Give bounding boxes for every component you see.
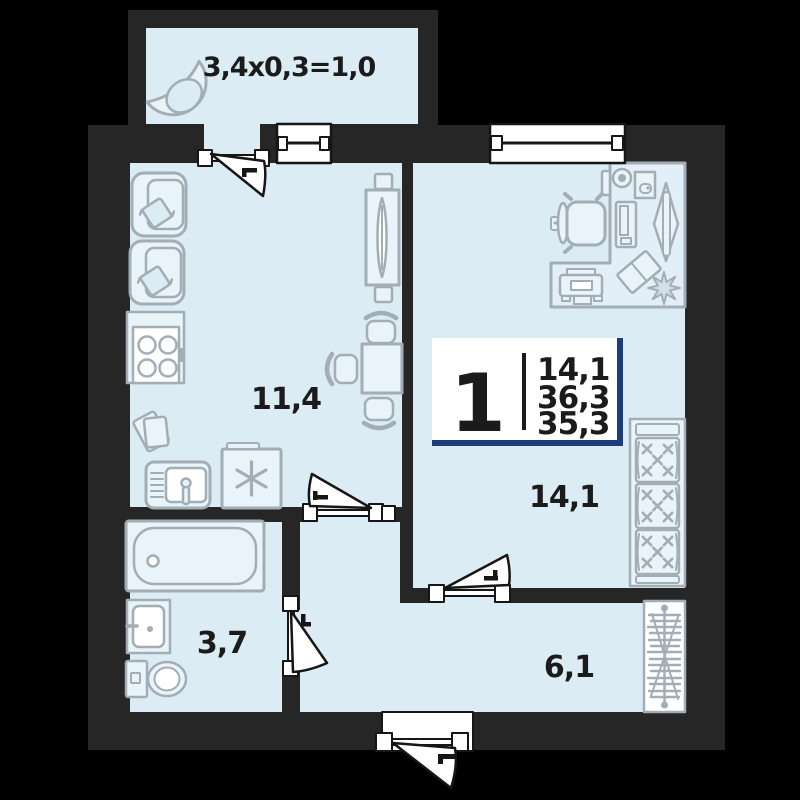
- bedroom-area-label: 14,1: [529, 480, 599, 515]
- badge-divider: [522, 353, 526, 430]
- kitchen-area-label: 11,4: [251, 382, 321, 417]
- hallway-floor: [400, 603, 685, 712]
- kitchen-sink-icon: [146, 462, 210, 508]
- fridge-icon: [222, 443, 281, 508]
- stove-icon: [127, 312, 184, 383]
- wardrobe-icon: [630, 419, 685, 586]
- photo-frame-icon: [635, 172, 655, 198]
- floor-plan-page: 3,4x0,3=1,0 11,4 14,1 3,7 6,1 1 14,1 36,…: [0, 0, 800, 800]
- badge-rooms-count: 1: [450, 357, 504, 450]
- armchair-icon: [130, 241, 184, 304]
- badge-accent-right: [617, 338, 623, 446]
- printer-icon: [560, 269, 602, 304]
- plant-icon: [648, 272, 680, 304]
- balcony-area-label: 3,4x0,3=1,0: [203, 52, 376, 83]
- hallway-corridor-floor: [300, 522, 400, 712]
- washbasin-icon: [127, 600, 170, 653]
- bathtub-icon: [126, 521, 264, 591]
- clothes-rack-icon: [644, 601, 685, 712]
- toilet-icon: [126, 661, 186, 697]
- floor-plan: 3,4x0,3=1,0 11,4 14,1 3,7 6,1 1 14,1 36,…: [0, 0, 800, 800]
- monitor-icon: [616, 202, 636, 247]
- bedroom-window-icon: [490, 124, 625, 163]
- armchair-icon: [132, 173, 186, 236]
- info-badge: 1 14,1 36,3 35,3: [432, 338, 623, 450]
- bathroom-area-label: 3,7: [197, 626, 247, 661]
- badge-area-no-balcony: 35,3: [537, 406, 610, 442]
- tv-stand-icon: [366, 174, 399, 302]
- balcony-window-icon: [277, 124, 331, 163]
- hallway-area-label: 6,1: [544, 650, 594, 685]
- dining-table-icon: [362, 344, 402, 393]
